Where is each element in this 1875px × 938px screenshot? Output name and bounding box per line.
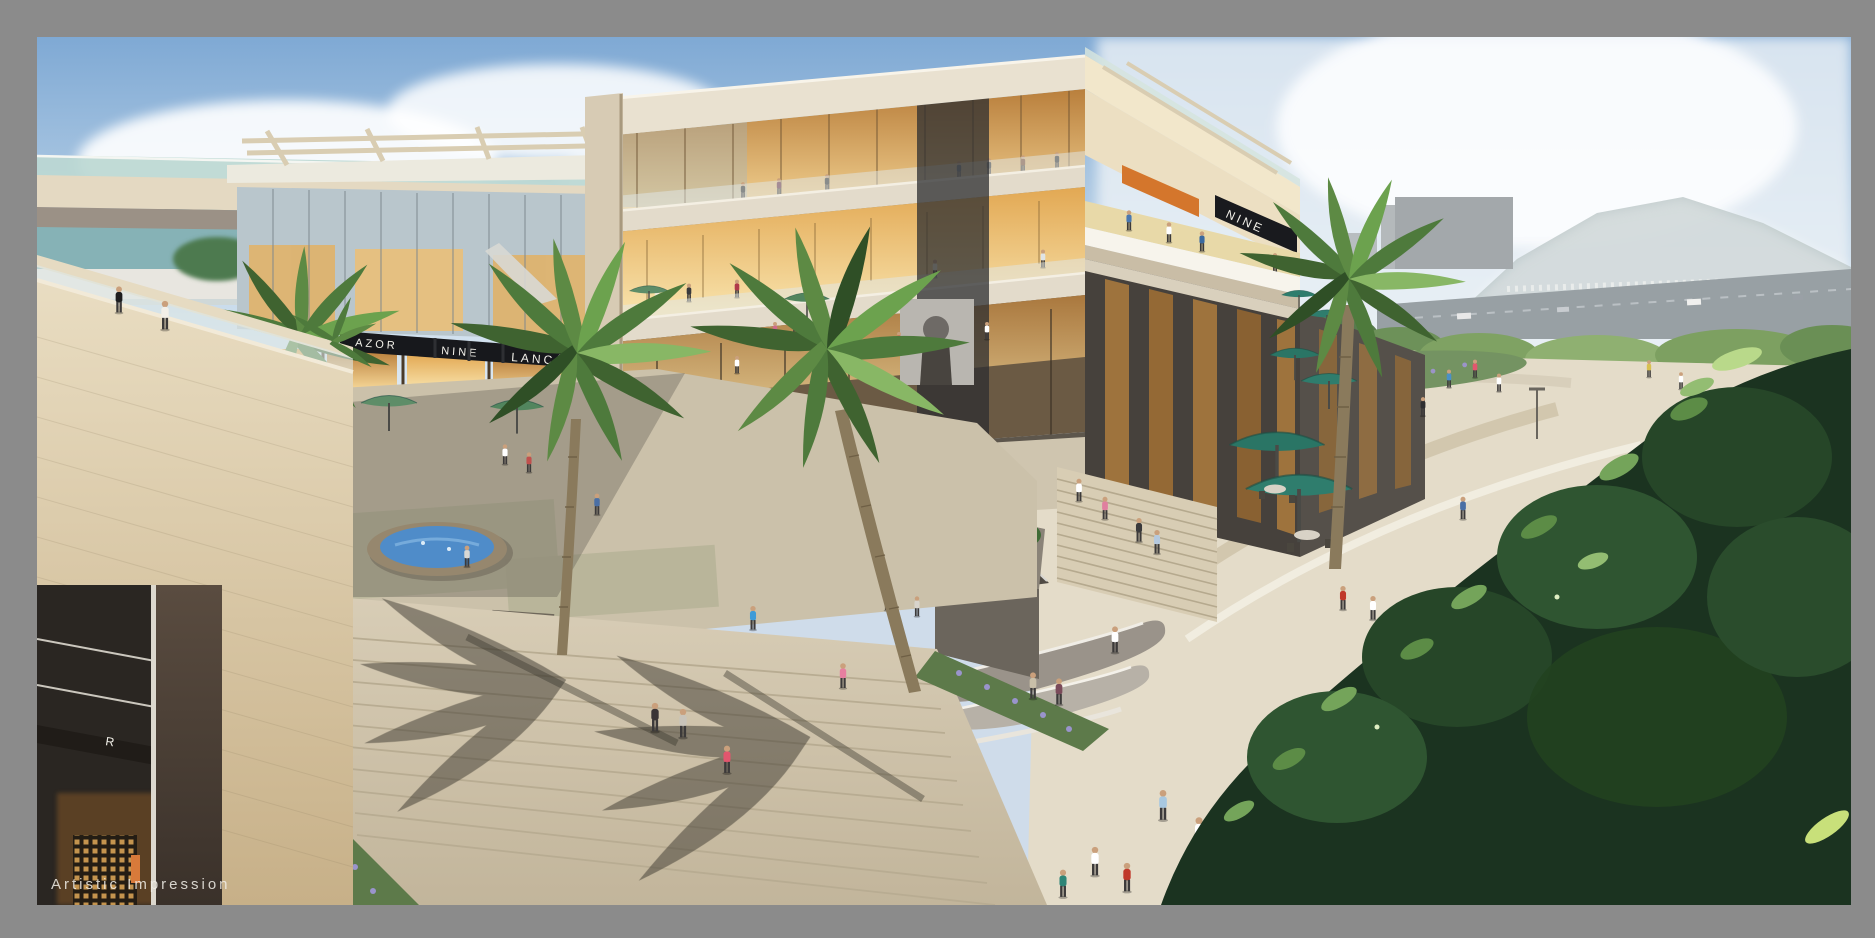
dark-glazing-joint	[917, 97, 989, 437]
dark-shopfront: R	[37, 585, 157, 905]
fountain-water	[380, 526, 494, 568]
dark-brown-pillar	[156, 585, 222, 905]
architectural-rendering: AZOR NINE LANCÔME	[37, 37, 1851, 905]
caption-artistic-impression: Artistic Impression	[51, 876, 231, 893]
gold-lattice-screen	[73, 835, 137, 905]
matte-frame: AZOR NINE LANCÔME	[0, 0, 1875, 938]
rendering-canvas: AZOR NINE LANCÔME	[37, 37, 1851, 905]
left-foreground-building: R	[37, 255, 379, 905]
white-corner-mullion	[151, 585, 156, 905]
left-shop-letter: R	[105, 734, 119, 750]
